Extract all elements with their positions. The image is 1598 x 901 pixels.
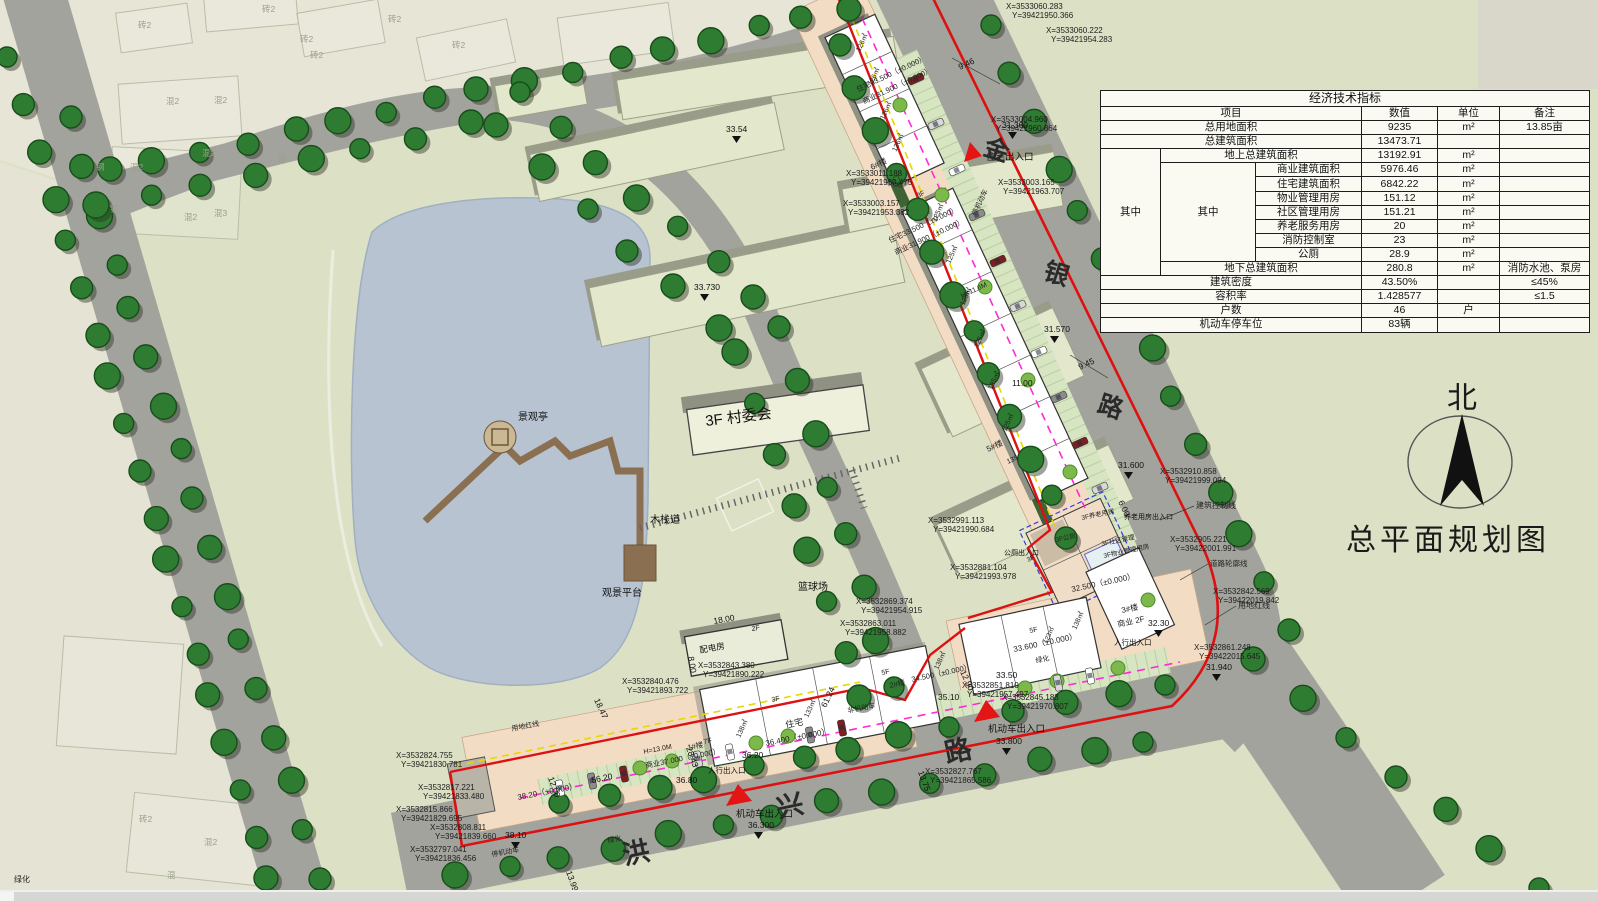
map-label: 31.600: [1118, 460, 1144, 470]
map-label: 11.00: [1012, 378, 1033, 388]
tree-icon: [60, 106, 82, 128]
tree-icon: [181, 487, 203, 509]
unit-cell: 户: [1438, 304, 1500, 318]
map-label: X=3533003.157: [843, 199, 900, 208]
item-cell: 商业建筑面积: [1256, 163, 1362, 177]
map-label: 木栈道: [650, 513, 680, 526]
economic-indicators-table: 经济技术指标 项目 数值 单位 备注 总用地面积9235m²13.85亩总建筑面…: [1100, 90, 1590, 333]
value-cell: 13192.91: [1362, 149, 1438, 163]
map-label: Y=39421830.781: [401, 760, 463, 769]
value-cell: 9235: [1362, 121, 1438, 135]
map-label: 砖2: [310, 50, 324, 60]
tree-icon: [1133, 732, 1153, 752]
map-label: Y=39421954.915: [861, 606, 923, 615]
remark-cell: ≤1.5: [1500, 290, 1590, 304]
value-cell: 1.428577: [1362, 290, 1438, 304]
tree-icon: [285, 117, 309, 141]
tree-icon: [610, 46, 632, 68]
tree-icon: [196, 683, 220, 707]
tree-icon: [708, 251, 730, 273]
map-label: Y=39421958.882: [845, 628, 907, 637]
unit-cell: [1438, 276, 1500, 290]
park-tree-icon: [1063, 465, 1077, 479]
map-label: 钢: [110, 204, 119, 214]
tree-icon: [722, 339, 748, 365]
tree-icon: [829, 34, 851, 56]
map-label: X=3532840.476: [622, 677, 679, 686]
item-cell: 消防控制室: [1256, 233, 1362, 247]
tree-icon: [817, 591, 837, 611]
map-label: Y=39421954.283: [1051, 35, 1113, 44]
map-label: 机动车出入口: [988, 723, 1045, 735]
tree-icon: [350, 139, 370, 159]
tree-icon: [1476, 836, 1502, 862]
tree-icon: [228, 629, 248, 649]
park-tree-icon: [1141, 593, 1155, 607]
map-label: 砖2: [139, 814, 153, 824]
map-label: 养老用房出入口: [1124, 512, 1173, 521]
park-tree-icon: [935, 188, 949, 202]
tree-icon: [510, 82, 530, 102]
map-label: X=3533060.283: [1006, 2, 1063, 11]
item-cell: 容积率: [1101, 290, 1362, 304]
tree-icon: [1082, 738, 1108, 764]
tree-icon: [583, 151, 607, 175]
map-label: X=3532827.767: [925, 767, 982, 776]
map-label: 33.54: [726, 124, 748, 134]
tree-icon: [1185, 433, 1207, 455]
map-label: 混2: [184, 212, 198, 222]
tree-icon: [768, 316, 790, 338]
map-label: X=3532842.569: [1213, 587, 1270, 596]
map-label: 33.50: [996, 670, 1018, 680]
map-label: 混3: [214, 208, 228, 218]
tree-icon: [292, 820, 312, 840]
pavilion: [484, 421, 516, 453]
item-cell: 地下总建筑面积: [1161, 262, 1362, 276]
tree-icon: [215, 584, 241, 610]
remark-cell: [1500, 163, 1590, 177]
value-cell: 5976.46: [1362, 163, 1438, 177]
map-label: 用地红线: [1238, 600, 1270, 610]
tree-icon: [1106, 681, 1132, 707]
plan-title: 总平面规划图: [1346, 524, 1550, 557]
col-header-remark: 备注: [1500, 107, 1590, 121]
map-label: 人行出入口: [1114, 637, 1152, 647]
remark-cell: [1500, 135, 1590, 149]
map-label: 篮球场: [798, 580, 828, 593]
tree-icon: [83, 192, 109, 218]
tree-icon: [12, 94, 34, 116]
tree-icon: [211, 729, 237, 755]
item-cell: 养老服务用房: [1256, 219, 1362, 233]
tree-icon: [624, 185, 650, 211]
unit-cell: m²: [1438, 247, 1500, 261]
map-label: X=3532843.380: [698, 661, 755, 670]
tree-icon: [134, 345, 158, 369]
map-label: 道路轮廓线: [1210, 558, 1248, 568]
value-cell: 43.50%: [1362, 276, 1438, 290]
tree-icon: [815, 789, 839, 813]
tree-icon: [869, 779, 895, 805]
map-label: 31.570: [1044, 324, 1070, 334]
map-label: 33.800: [996, 736, 1022, 746]
table-row: 建筑密度43.50%≤45%: [1101, 276, 1590, 290]
tree-icon: [655, 821, 681, 847]
item-cell: 地上总建筑面积: [1161, 149, 1362, 163]
map-label: Y=39421893.722: [627, 686, 689, 695]
map-label: X=3532824.755: [396, 751, 453, 760]
tree-icon: [153, 546, 179, 572]
map-label: 混2: [202, 148, 216, 158]
tree-icon: [254, 866, 278, 890]
item-cell: 户数: [1101, 304, 1362, 318]
tree-icon: [616, 240, 638, 262]
tree-icon: [547, 847, 569, 869]
tree-icon: [114, 413, 134, 433]
map-label: X=3532863.011: [840, 619, 897, 628]
tree-icon: [835, 523, 857, 545]
scrollbar-corner: [0, 892, 14, 901]
tree-icon: [862, 118, 888, 144]
map-label: 混2: [204, 837, 218, 847]
map-label: 38.10: [505, 830, 527, 840]
map-label: X=3532808.811: [430, 823, 487, 832]
tree-icon: [1028, 747, 1052, 771]
tree-icon: [835, 642, 857, 664]
value-cell: 83辆: [1362, 318, 1438, 332]
tree-icon: [998, 62, 1020, 84]
tree-icon: [529, 154, 555, 180]
map-label: X=3532881.104: [950, 563, 1007, 572]
table-row: 地下总建筑面积280.8m²消防水池、泵房: [1101, 262, 1590, 276]
tree-icon: [0, 47, 17, 67]
unit-cell: m²: [1438, 149, 1500, 163]
tree-icon: [55, 230, 75, 250]
map-label: 绿化: [14, 874, 30, 884]
map-label: 36.20: [742, 750, 764, 760]
table-row: 其中地上总建筑面积13192.91m²: [1101, 149, 1590, 163]
tree-icon: [713, 815, 733, 835]
col-header-unit: 单位: [1438, 107, 1500, 121]
unit-cell: m²: [1438, 121, 1500, 135]
tree-icon: [651, 37, 675, 61]
unit-cell: m²: [1438, 262, 1500, 276]
unit-cell: m²: [1438, 191, 1500, 205]
item-cell: 机动车停车位: [1101, 318, 1362, 332]
map-label: Y=39421833.480: [423, 792, 485, 801]
remark-cell: [1500, 191, 1590, 205]
park-tree-icon: [893, 98, 907, 112]
item-cell: 社区管理用房: [1256, 205, 1362, 219]
table-row: 其中商业建筑面积5976.46m²: [1101, 163, 1590, 177]
group-outer-cell: 其中: [1101, 149, 1161, 276]
map-label: X=3532797.041: [410, 845, 467, 854]
tree-icon: [852, 575, 876, 599]
tree-icon: [1161, 386, 1181, 406]
tree-icon: [142, 185, 162, 205]
map-label: Y=39421970.807: [1007, 702, 1069, 711]
map-label: Y=39421865.586: [930, 776, 992, 785]
map-label: 36.80: [676, 775, 698, 785]
value-cell: 13473.71: [1362, 135, 1438, 149]
table-title: 经济技术指标: [1101, 91, 1590, 107]
tree-icon: [1278, 619, 1300, 641]
north-label: 北: [1447, 382, 1477, 415]
tree-icon: [71, 277, 93, 299]
tree-icon: [424, 86, 446, 108]
tree-icon: [107, 255, 127, 275]
tree-icon: [117, 297, 139, 319]
remark-cell: [1500, 219, 1590, 233]
tree-icon: [1290, 685, 1316, 711]
tree-icon: [298, 146, 324, 172]
col-header-item: 项目: [1101, 107, 1362, 121]
map-label: Y=39421890.222: [703, 670, 765, 679]
tree-icon: [70, 154, 94, 178]
table-row: 机动车停车位83辆: [1101, 318, 1590, 332]
item-cell: 建筑密度: [1101, 276, 1362, 290]
map-label: 砖2: [300, 34, 314, 44]
map-label: 钢: [96, 162, 105, 172]
table-row: 容积率1.428577≤1.5: [1101, 290, 1590, 304]
remark-cell: [1500, 205, 1590, 219]
map-label: Y=39421950.475: [851, 178, 913, 187]
map-label: 公厕出入口: [1004, 548, 1039, 557]
tree-icon: [1385, 766, 1407, 788]
tree-icon: [187, 643, 209, 665]
tree-icon: [803, 421, 829, 447]
map-label: 建筑控制线: [1196, 500, 1236, 510]
tree-icon: [172, 597, 192, 617]
tree-icon: [94, 363, 120, 389]
map-label: 混2: [166, 96, 180, 106]
unit-cell: m²: [1438, 205, 1500, 219]
map-label: X=3532815.866: [396, 805, 453, 814]
remark-cell: [1500, 318, 1590, 332]
tree-icon: [794, 746, 816, 768]
tree-icon: [1140, 335, 1166, 361]
tree-icon: [279, 767, 305, 793]
map-label: Y=39421990.684: [933, 525, 995, 534]
tree-icon: [794, 537, 820, 563]
tree-icon: [785, 368, 809, 392]
map-label: 混2: [214, 95, 228, 105]
tree-icon: [230, 780, 250, 800]
map-label: 砖2: [138, 20, 152, 30]
table-row: 总用地面积9235m²13.85亩: [1101, 121, 1590, 135]
remark-cell: 消防水池、泵房: [1500, 262, 1590, 276]
tree-icon: [706, 315, 732, 341]
item-cell: 物业管理用房: [1256, 191, 1362, 205]
map-label: 混: [167, 870, 176, 880]
tree-icon: [245, 678, 267, 700]
map-label: X=3533060.222: [1046, 26, 1103, 35]
site-plan-page: 砖2砖2砖2砖2砖2砖2混2混2混2混2混2混3钢钢建混2混砖2 X=35330…: [0, 0, 1598, 901]
group-inner-cell: 其中: [1161, 163, 1256, 262]
map-label: Y=39421953.382: [848, 208, 910, 217]
map-label: 混2: [130, 162, 144, 172]
tree-icon: [262, 726, 286, 750]
tree-icon: [668, 216, 688, 236]
tree-icon: [550, 116, 572, 138]
map-label: 36.300: [748, 820, 774, 830]
park-tree-icon: [1111, 661, 1125, 675]
tree-icon: [244, 163, 268, 187]
map-label: 砖2: [452, 40, 466, 50]
sheet-corner: [1478, 0, 1598, 89]
map-label: Y=39421836.456: [415, 854, 477, 863]
tree-icon: [198, 535, 222, 559]
map-label: 31.940: [1206, 662, 1232, 672]
map-label: Y=39421829.695: [401, 814, 463, 823]
unit-cell: m²: [1438, 219, 1500, 233]
tree-icon: [939, 717, 959, 737]
value-cell: 280.8: [1362, 262, 1438, 276]
item-cell: 住宅建筑面积: [1256, 177, 1362, 191]
tree-icon: [782, 494, 806, 518]
map-label: 33.730: [694, 282, 720, 292]
map-label: X=3532905.221: [1170, 535, 1227, 544]
tree-icon: [404, 128, 426, 150]
map-label: X=3532869.374: [856, 597, 913, 606]
map-label: 观景平台: [602, 586, 642, 599]
tree-icon: [325, 108, 351, 134]
map-label: 2F: [751, 625, 760, 633]
map-label: Y=39421950.366: [1012, 11, 1074, 20]
unit-cell: [1438, 318, 1500, 332]
remark-cell: [1500, 149, 1590, 163]
map-label: 人行出入口: [708, 765, 746, 775]
tree-icon: [790, 6, 812, 28]
tree-icon: [763, 444, 785, 466]
tree-icon: [309, 868, 331, 890]
tree-icon: [189, 174, 211, 196]
item-cell: 总建筑面积: [1101, 135, 1362, 149]
map-label: 建: [278, 154, 287, 164]
tree-icon: [376, 103, 396, 123]
map-label: 32.30: [1148, 618, 1170, 628]
viewing-platform: [624, 545, 656, 581]
park-tree-icon: [749, 736, 763, 750]
tree-icon: [599, 784, 621, 806]
remark-cell: ≤45%: [1500, 276, 1590, 290]
table-row: 户数46户: [1101, 304, 1590, 318]
value-cell: 23: [1362, 233, 1438, 247]
tree-icon: [907, 198, 929, 220]
tree-icon: [817, 477, 837, 497]
map-label: 35.10: [938, 692, 960, 702]
tree-icon: [741, 285, 765, 309]
map-label: Y=39421963.707: [1003, 187, 1065, 196]
tree-icon: [981, 15, 1001, 35]
tree-icon: [484, 113, 508, 137]
value-cell: 20: [1362, 219, 1438, 233]
col-header-value: 数值: [1362, 107, 1438, 121]
remark-cell: [1500, 247, 1590, 261]
map-label: X=3532991.113: [928, 516, 985, 525]
remark-cell: [1500, 233, 1590, 247]
map-label: X=3533003.165: [998, 178, 1055, 187]
unit-cell: m²: [1438, 177, 1500, 191]
map-label: Y=39421839.660: [435, 832, 497, 841]
remark-cell: [1500, 177, 1590, 191]
item-cell: 总用地面积: [1101, 121, 1362, 135]
tree-icon: [464, 77, 488, 101]
tree-icon: [459, 110, 483, 134]
value-cell: 151.12: [1362, 191, 1438, 205]
unit-cell: m²: [1438, 163, 1500, 177]
value-cell: 28.9: [1362, 247, 1438, 261]
tree-icon: [698, 28, 724, 54]
unit-cell: [1438, 290, 1500, 304]
unit-cell: m²: [1438, 233, 1500, 247]
tree-icon: [1336, 728, 1356, 748]
map-label: 砖2: [262, 4, 276, 14]
tree-icon: [836, 738, 860, 762]
map-label: 31.360: [1002, 120, 1028, 130]
tree-icon: [1067, 201, 1087, 221]
map-label: Y=39421993.978: [955, 572, 1017, 581]
tree-icon: [563, 63, 583, 83]
remark-cell: [1500, 304, 1590, 318]
tree-icon: [648, 776, 672, 800]
value-cell: 151.21: [1362, 205, 1438, 219]
map-label: 景观亭: [518, 410, 548, 423]
item-cell: 公厕: [1256, 247, 1362, 261]
map-label: 砖2: [388, 14, 402, 24]
map-label: Y=39422001.991: [1175, 544, 1237, 553]
tree-icon: [1042, 485, 1062, 505]
value-cell: 46: [1362, 304, 1438, 318]
table-title-row: 经济技术指标: [1101, 91, 1590, 107]
map-label: X=3532861.248: [1194, 643, 1251, 652]
tree-icon: [837, 0, 861, 21]
tree-icon: [1434, 797, 1458, 821]
tree-icon: [749, 16, 769, 36]
tree-icon: [500, 856, 520, 876]
tree-icon: [578, 199, 598, 219]
remark-cell: 13.85亩: [1500, 121, 1590, 135]
tree-icon: [1226, 521, 1252, 547]
tree-icon: [144, 507, 168, 531]
table-row: 总建筑面积13473.71: [1101, 135, 1590, 149]
horizontal-scrollbar[interactable]: [0, 890, 1598, 901]
tree-icon: [43, 187, 69, 213]
unit-cell: [1438, 135, 1500, 149]
tree-icon: [129, 460, 151, 482]
value-cell: 6842.22: [1362, 177, 1438, 191]
tree-icon: [237, 133, 259, 155]
map-label: X=3532845.183: [1002, 693, 1059, 702]
tree-icon: [86, 323, 110, 347]
tree-icon: [246, 826, 268, 848]
map-label: Y=39422015.645: [1199, 652, 1261, 661]
tree-icon: [886, 722, 912, 748]
tree-icon: [1155, 675, 1175, 695]
tree-icon: [151, 393, 177, 419]
tree-icon: [1018, 446, 1044, 472]
table-header-row: 项目 数值 单位 备注: [1101, 107, 1590, 121]
map-label: X=3532817.221: [418, 783, 475, 792]
tree-icon: [661, 274, 685, 298]
tree-icon: [171, 439, 191, 459]
map-label: Y=39421999.094: [1165, 476, 1227, 485]
map-label: X=3532910.858: [1160, 467, 1217, 476]
tree-icon: [442, 862, 468, 888]
tree-icon: [28, 140, 52, 164]
